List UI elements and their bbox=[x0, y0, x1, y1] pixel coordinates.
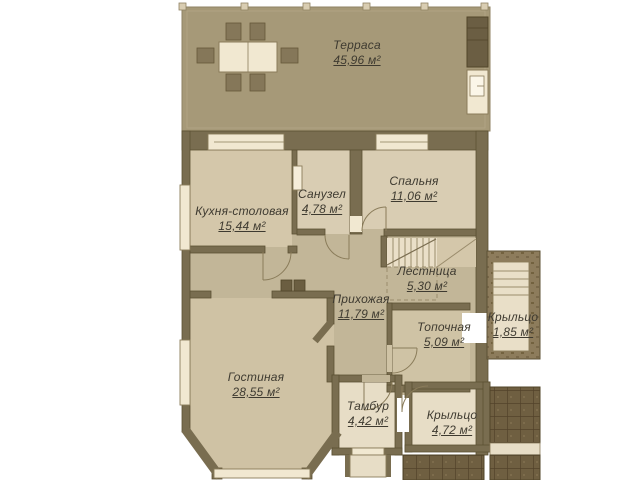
step-side-left bbox=[345, 455, 350, 477]
wall-kitchen-stub bbox=[288, 246, 297, 253]
bbq-grill-icon bbox=[467, 17, 488, 67]
room-label-terrace: Терраса 45,96 м² bbox=[333, 38, 381, 67]
porch-bottom-paving bbox=[403, 455, 484, 480]
bbq-counter bbox=[467, 17, 488, 114]
wall-living-top-right bbox=[272, 291, 334, 298]
opening-vestibule-door bbox=[362, 375, 390, 382]
porch-bottom-paving-right bbox=[490, 387, 540, 443]
wall-bedroom-bottom bbox=[384, 229, 476, 236]
wall-bath-bottom bbox=[297, 229, 325, 235]
window-living-left bbox=[180, 340, 190, 405]
porch-bottom-paving-corner bbox=[490, 455, 540, 480]
vestibule-step bbox=[350, 455, 386, 477]
wall-kitchen-bath bbox=[292, 150, 297, 234]
step-side-right bbox=[386, 455, 391, 477]
window-bay-bottom bbox=[214, 469, 310, 478]
wall-porchroom-right bbox=[483, 382, 490, 452]
room-label-hallway: Прихожая 11,79 м² bbox=[332, 292, 389, 321]
room-label-bedroom: Спальня 11,06 м² bbox=[389, 174, 438, 203]
room-label-stairs: Лестница 5,30 м² bbox=[397, 264, 456, 293]
room-label-vestibule: Тамбур 4,42 м² bbox=[347, 399, 389, 428]
opening-boiler-door bbox=[387, 345, 392, 372]
wall-porchroom-bottom bbox=[405, 445, 490, 452]
porch-bottom-step-right bbox=[490, 443, 540, 455]
room-label-porch-right: Крыльцо 1,85 м² bbox=[488, 310, 539, 339]
wall-boiler-top bbox=[387, 303, 470, 310]
room-label-living: Гостиная 28,55 м² bbox=[228, 370, 285, 399]
floor-plan-canvas bbox=[0, 0, 640, 480]
wall-stairs-left bbox=[381, 236, 387, 267]
floor-plan-viewport: Терраса 45,96 м² Кухня-столовая 15,44 м²… bbox=[0, 0, 640, 480]
room-label-bathroom: Санузел 4,78 м² bbox=[298, 187, 346, 216]
wall-living-top-left bbox=[190, 291, 211, 298]
window-kitchen-left bbox=[180, 185, 190, 250]
room-label-boiler: Топочная 5,09 м² bbox=[417, 320, 471, 349]
opening-bath-bedroom bbox=[350, 216, 362, 232]
terrace-area bbox=[179, 3, 490, 131]
room-label-porch-bottom: Крыльцо 4,72 м² bbox=[427, 408, 478, 437]
door-vestibule-entry bbox=[352, 448, 384, 455]
room-label-kitchen: Кухня-столовая 15,44 м² bbox=[195, 204, 289, 233]
wall-kitchen-bottom bbox=[190, 246, 265, 253]
